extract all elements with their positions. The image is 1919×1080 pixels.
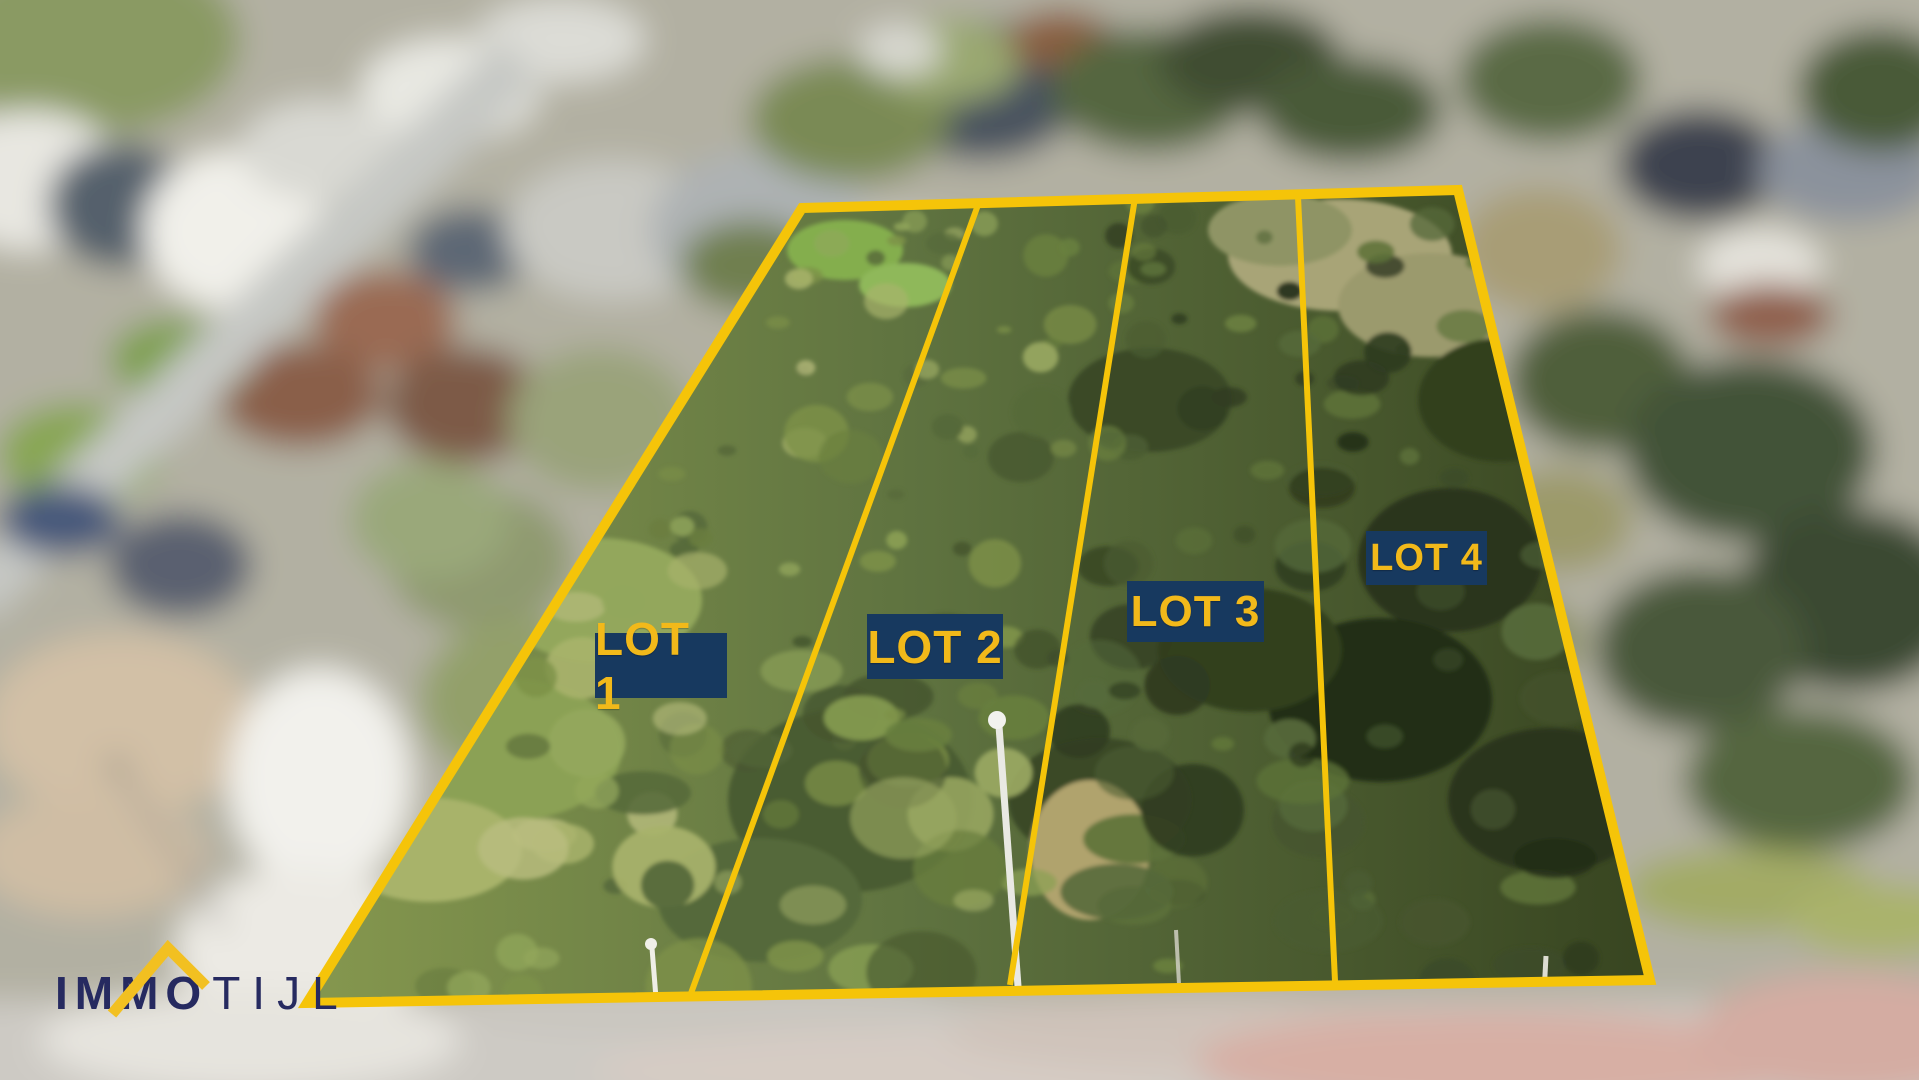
immo-tijl-logo: IMMOTIJL [50,938,330,1033]
lot-2-label: LOT 2 [867,614,1003,679]
logo-wordmark: IMMOTIJL [55,970,350,1016]
photo-canvas [0,0,1919,1080]
lot-4-label: LOT 4 [1366,531,1487,585]
logo-text-primary: IMMO [55,967,208,1019]
logo-text-secondary: TIJL [212,967,349,1019]
aerial-photo: LOT 1 LOT 2 LOT 3 LOT 4 IMMOTIJL [0,0,1919,1080]
lot-1-label: LOT 1 [595,633,727,698]
lot-3-label: LOT 3 [1127,581,1264,642]
